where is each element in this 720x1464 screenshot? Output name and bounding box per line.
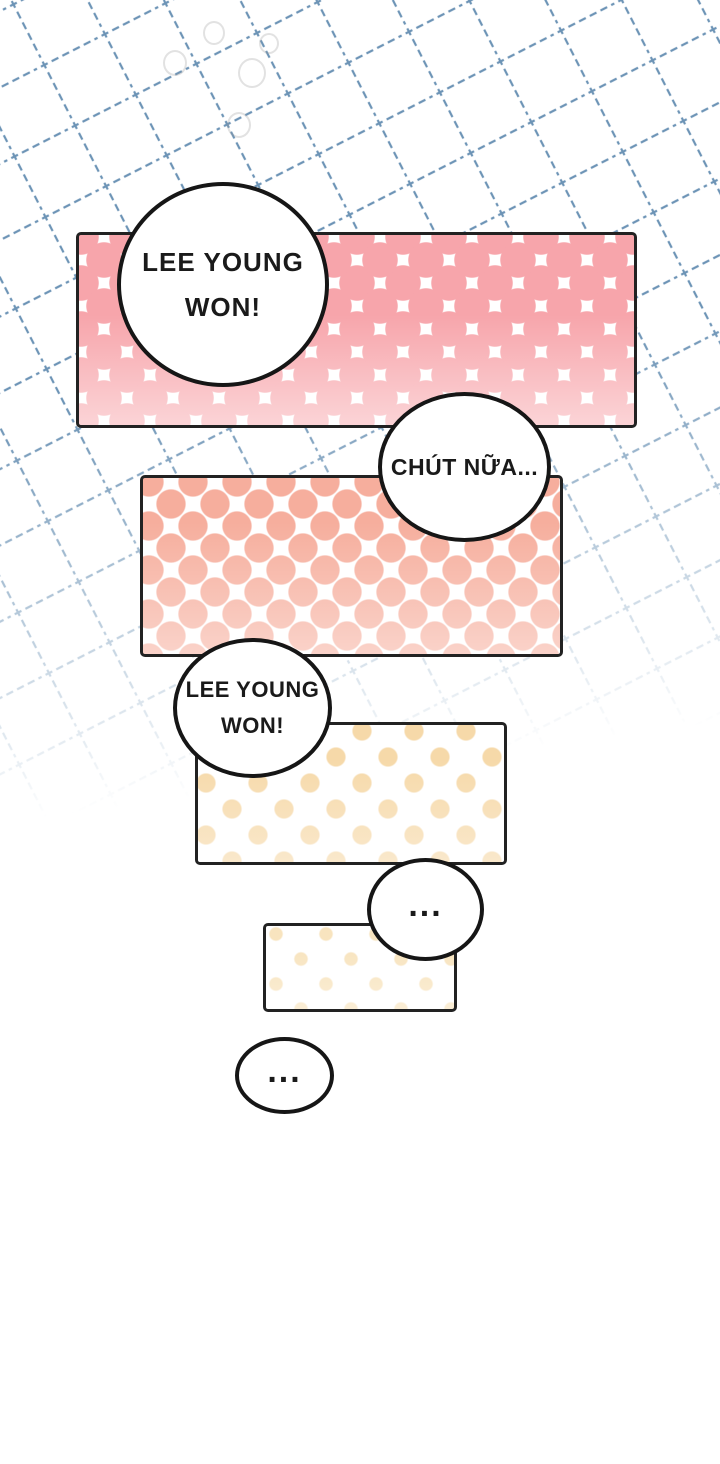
bubble-text-line: LEE YOUNG: [142, 240, 304, 285]
bubble-text-line: WON!: [221, 708, 284, 744]
speech-bubble-lee-young-won-1: LEE YOUNG WON!: [117, 182, 329, 387]
bubble-text-line: LEE YOUNG: [186, 672, 320, 708]
speech-bubble-ellipsis-1: ...: [367, 858, 484, 961]
speech-bubble-lee-young-won-2: LEE YOUNG WON!: [173, 638, 332, 778]
speech-bubble-chut-nua: CHÚT NỮA...: [378, 392, 551, 542]
bubble-text-line: WON!: [185, 285, 261, 330]
bubble-text-line: CHÚT NỮA...: [391, 451, 538, 483]
sketch-circle: [203, 21, 225, 45]
sketch-circle: [227, 112, 251, 138]
sketch-circle: [238, 58, 266, 88]
speech-bubble-ellipsis-2: ...: [235, 1037, 334, 1114]
comic-page: LEE YOUNG WON! CHÚT NỮA... LEE YOUNG WON…: [0, 0, 720, 1464]
sketch-circle: [163, 50, 187, 76]
sketch-circle: [259, 33, 279, 54]
